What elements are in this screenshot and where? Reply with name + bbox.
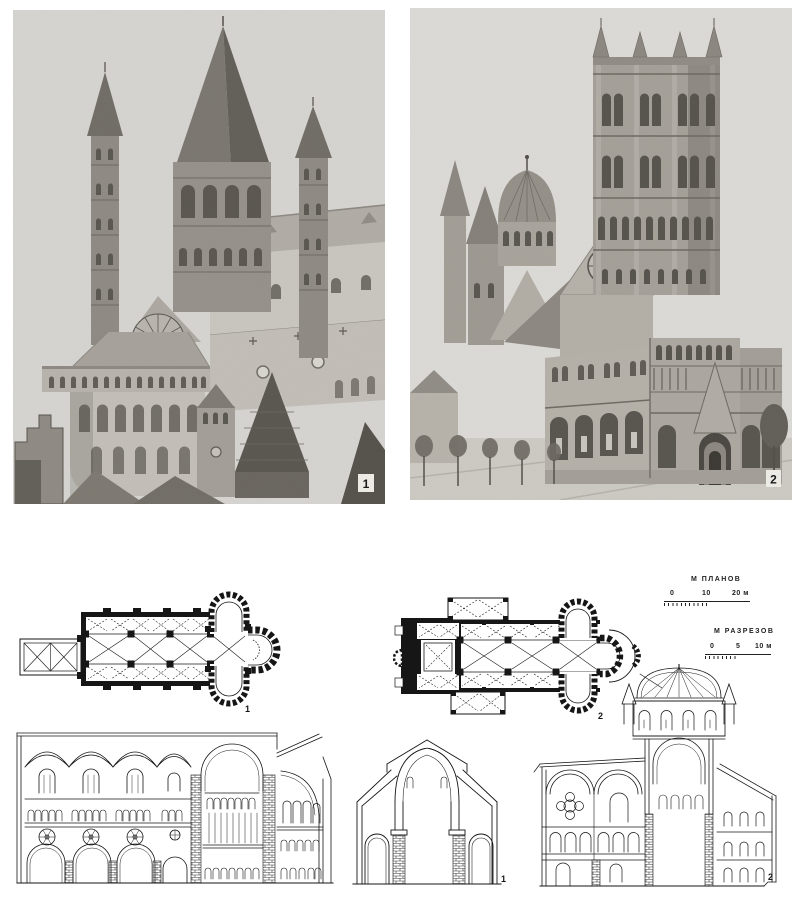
scale-ruler-hatch (664, 603, 710, 606)
church-photo-2-art: 2 (410, 8, 792, 500)
section-church-1 (15, 727, 337, 885)
scale-tick: 20 м (732, 590, 749, 597)
scale-ruler-sections (705, 654, 771, 659)
cross-section-church-1: 1 (349, 738, 509, 888)
church-photo-1-art: 1 (13, 10, 385, 504)
photo2-label-text: 2 (770, 473, 777, 487)
photo1-figure-label: 1 (358, 474, 374, 492)
photo1-label-text: 1 (363, 477, 370, 491)
scale-tick: 5 (736, 643, 740, 650)
scale-bar-plans: М ПЛАНОВ 0 10 20 м (664, 576, 756, 606)
scale-tick: 10 м (755, 643, 772, 650)
scale-tick: 0 (710, 643, 714, 650)
scale-tick: 0 (670, 590, 674, 597)
church-photo-2: 2 (410, 8, 792, 500)
scale-ruler-plans (664, 601, 750, 606)
section-church-2: 2 (532, 664, 780, 888)
scale-ruler-hatch (705, 656, 738, 659)
church-photo-1: 1 (13, 10, 385, 504)
photo1-grain (13, 10, 385, 504)
section2-label-text: 2 (768, 872, 773, 882)
book-page: 1 (0, 0, 800, 909)
cross-section-label-text: 1 (501, 874, 506, 884)
plan1-label-text: 1 (245, 704, 250, 714)
scale-tick: 10 (702, 590, 711, 597)
photo2-figure-label: 2 (766, 470, 781, 487)
scale-bar-sections: М РАЗРЕЗОВ 0 5 10 м (705, 628, 775, 660)
photo2-grain (410, 8, 792, 500)
scale-bar-sections-title: М РАЗРЕЗОВ (705, 628, 775, 635)
scale-bar-plans-title: М ПЛАНОВ (664, 576, 756, 583)
floor-plan-1: 1 (19, 582, 281, 716)
